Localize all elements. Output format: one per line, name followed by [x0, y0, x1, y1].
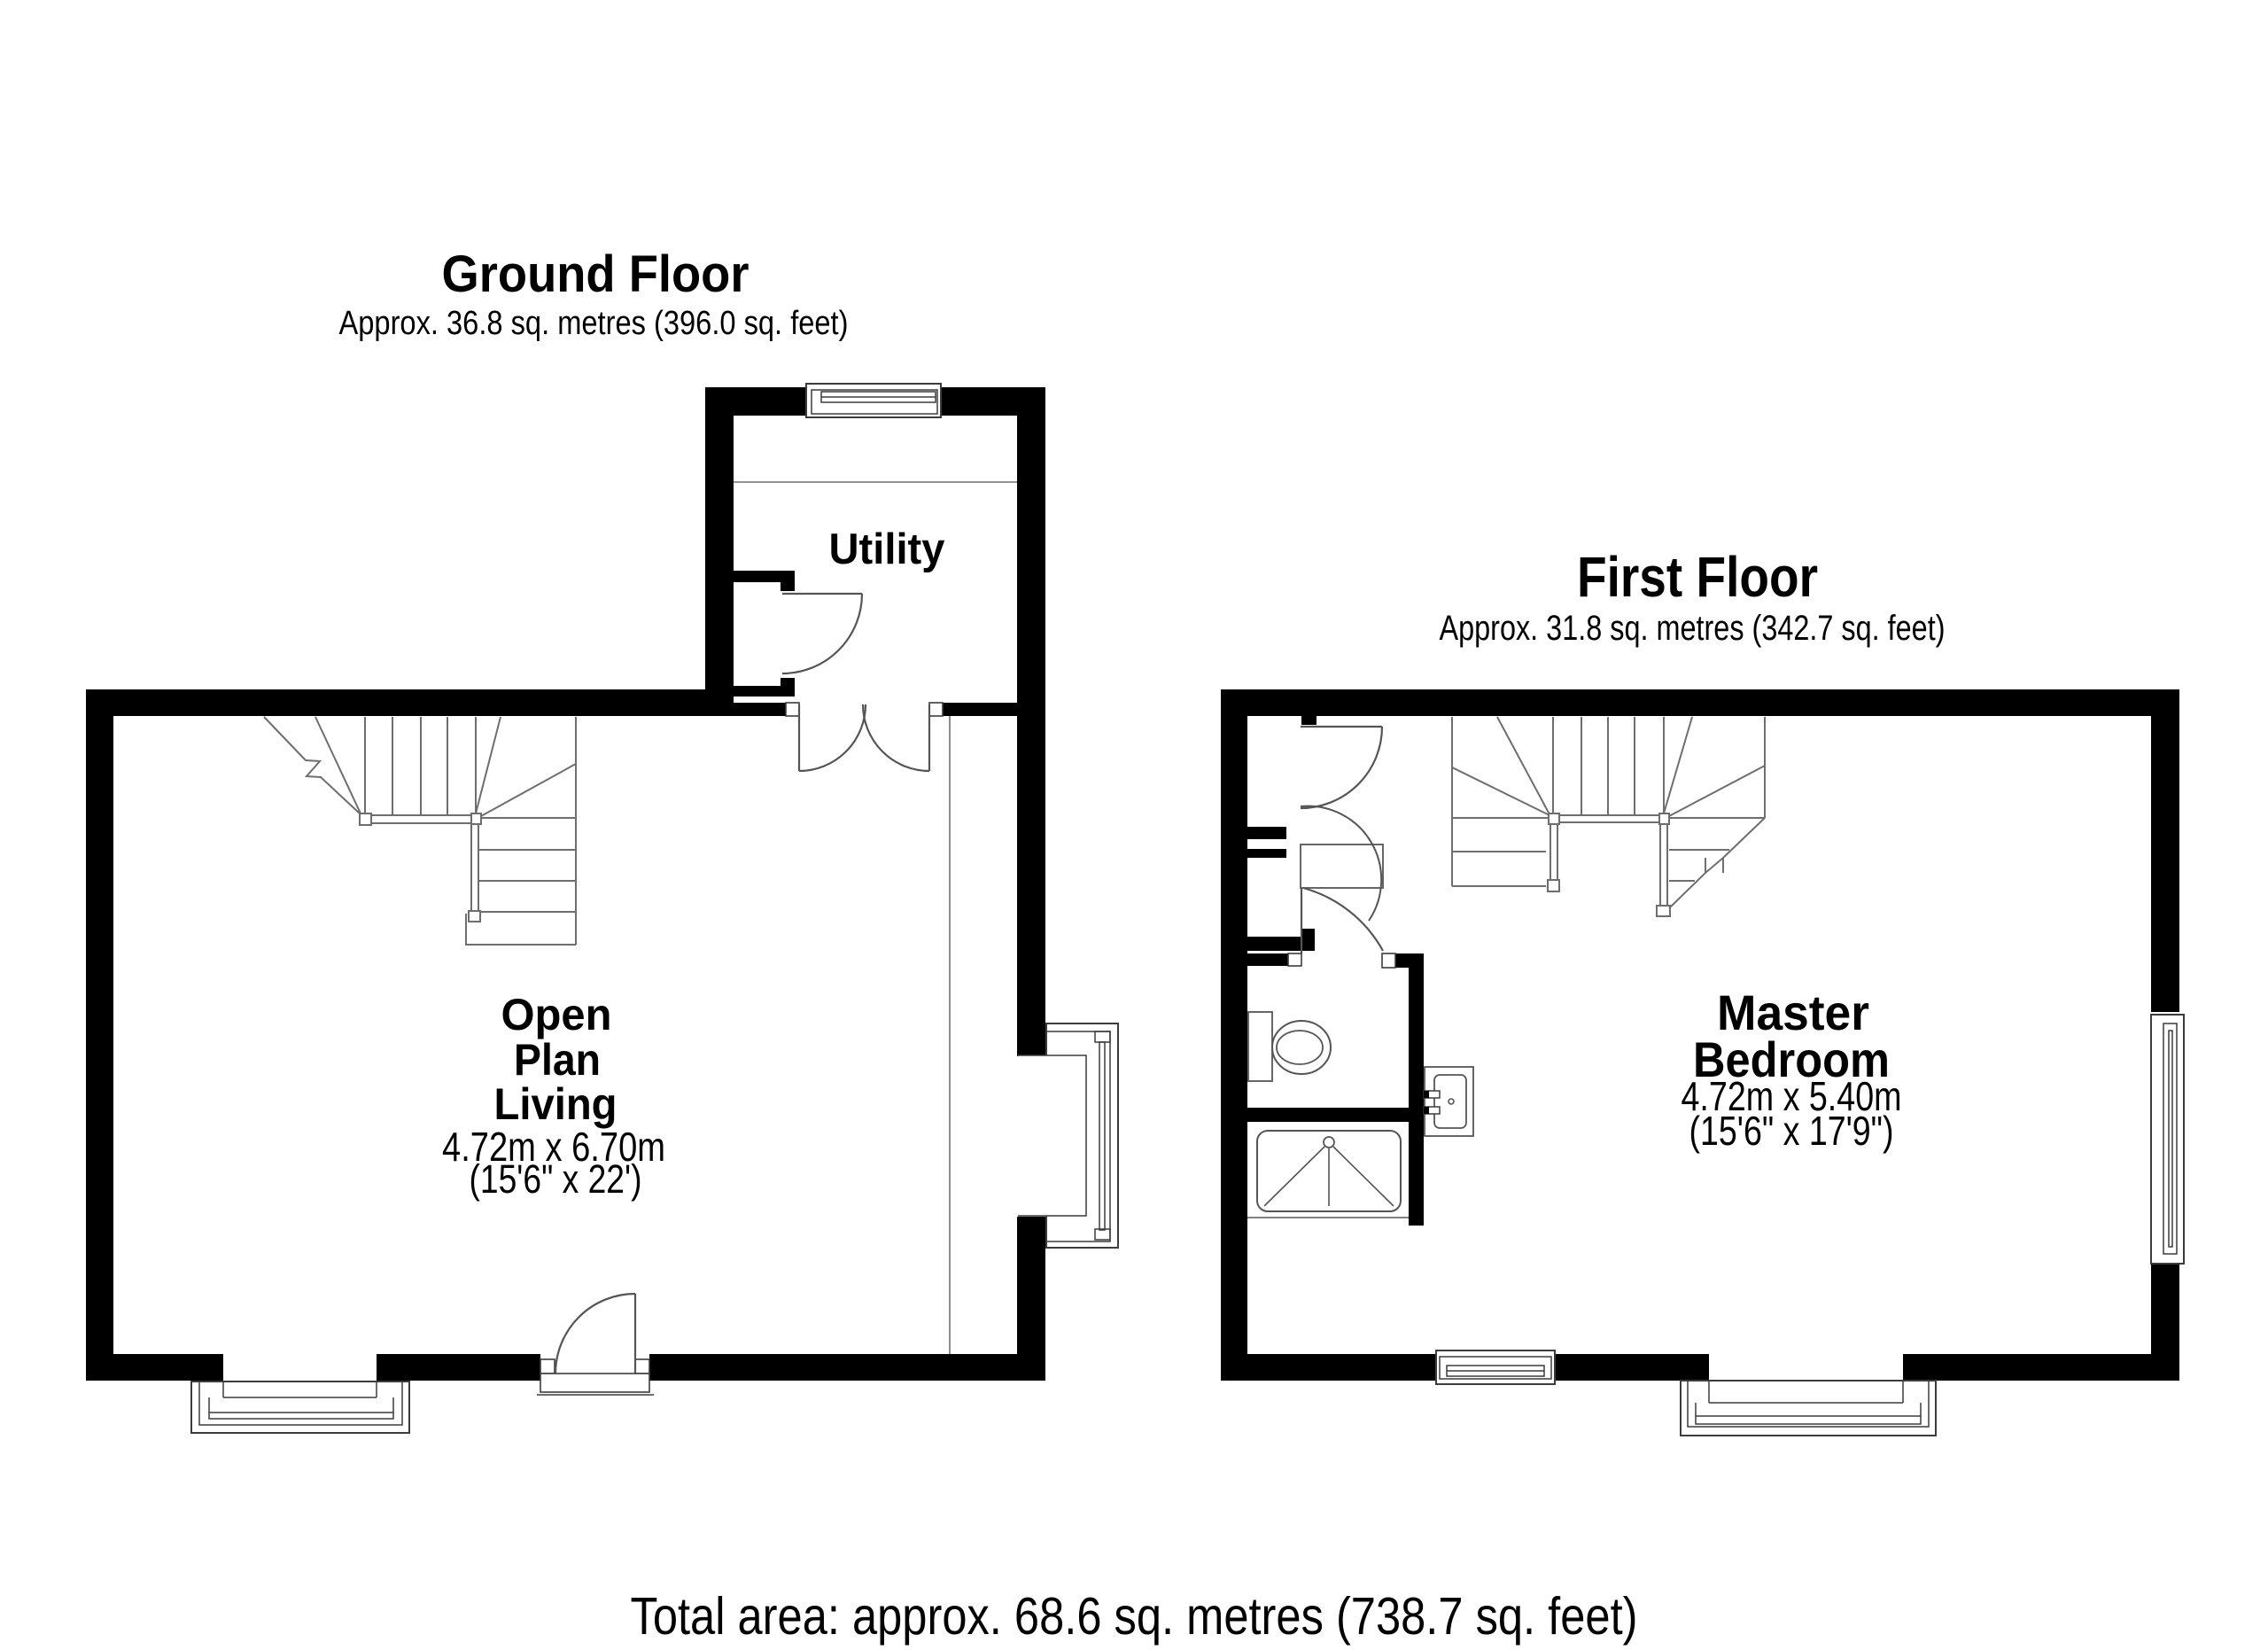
- svg-text:Living: Living: [494, 1079, 617, 1129]
- svg-text:Approx. 31.8 sq. metres (342.7: Approx. 31.8 sq. metres (342.7 sq. feet): [1440, 609, 1946, 648]
- svg-text:Total area: approx. 68.6 sq. m: Total area: approx. 68.6 sq. metres (738…: [631, 1587, 1638, 1646]
- svg-text:Ground Floor: Ground Floor: [442, 245, 750, 303]
- svg-text:Approx. 36.8 sq. metres (396.0: Approx. 36.8 sq. metres (396.0 sq. feet): [339, 305, 849, 342]
- svg-text:Utility: Utility: [829, 525, 945, 573]
- svg-text:First Floor: First Floor: [1577, 545, 1818, 609]
- svg-text:(15'6" x 17'9"): (15'6" x 17'9"): [1689, 1108, 1894, 1154]
- svg-text:Plan: Plan: [514, 1035, 601, 1085]
- svg-text:Open: Open: [501, 990, 612, 1039]
- svg-text:(15'6" x 22'): (15'6" x 22'): [470, 1156, 642, 1202]
